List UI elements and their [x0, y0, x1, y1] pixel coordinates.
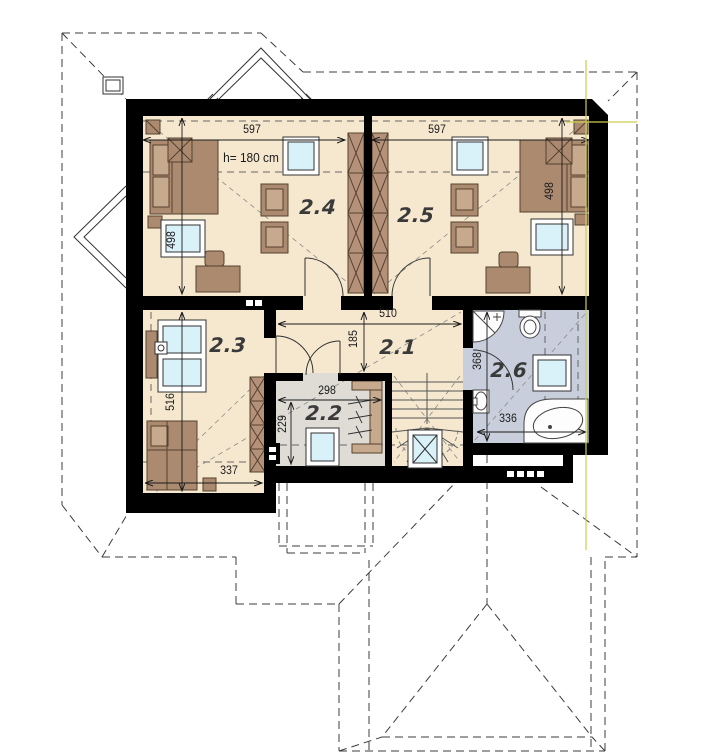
- roof-window-room25-right: [531, 219, 573, 255]
- chair-room25: [499, 252, 518, 267]
- room-label-25: 2.5: [397, 203, 436, 227]
- window-stairs: [408, 430, 442, 468]
- desk-room25: [486, 267, 530, 293]
- dim-room23-width: 337: [220, 465, 238, 477]
- dim-bath-depth: 368: [472, 352, 484, 370]
- roof-window-room25-top: [452, 137, 488, 175]
- room-label-22: 2.2: [305, 401, 344, 425]
- ceiling-height-note: h= 180 cm: [223, 151, 279, 165]
- roof-window-room24-top: [283, 137, 319, 175]
- plan-drawing: [0, 0, 724, 754]
- dim-room23-depth: 516: [165, 393, 177, 411]
- dim-room25-depth: 498: [544, 182, 556, 200]
- room-label-24: 2.4: [299, 195, 338, 219]
- chimney: [103, 77, 123, 94]
- dim-room22-width: 298: [318, 385, 336, 397]
- window-room22: [306, 428, 339, 466]
- bed-room24: [150, 138, 218, 214]
- room-label-26: 2.6: [490, 358, 529, 382]
- roof-window-room23: [155, 320, 206, 392]
- desk-room24: [196, 266, 240, 292]
- dim-room22-depth: 229: [277, 415, 289, 433]
- roof-window-bath: [533, 355, 571, 391]
- dim-room24-width: 597: [243, 124, 261, 136]
- dim-hall-width: 510: [379, 308, 397, 320]
- gable-left: [74, 186, 126, 288]
- chair-room24: [205, 251, 224, 266]
- nightstand: [203, 478, 216, 491]
- dim-bath-width: 336: [499, 413, 517, 425]
- room-label-23: 2.3: [209, 333, 248, 357]
- bathtub: [524, 399, 588, 443]
- bed-room25: [520, 138, 588, 212]
- nightstand: [148, 216, 162, 228]
- wardrobe-room25: [372, 133, 388, 293]
- toilet: [519, 310, 541, 338]
- dim-hall-depth: 185: [348, 330, 360, 348]
- room-label-21: 2.1: [379, 335, 418, 359]
- dim-room24-depth: 498: [166, 231, 178, 249]
- bed-room23: [147, 421, 197, 490]
- floor-plan: 2.4 2.5 2.3 2.1 2.2 2.6 h= 180 cm 597 59…: [0, 0, 724, 754]
- dim-room25-width: 597: [428, 124, 446, 136]
- wardrobe-room23: [250, 377, 265, 472]
- wardrobe-room24: [348, 133, 364, 293]
